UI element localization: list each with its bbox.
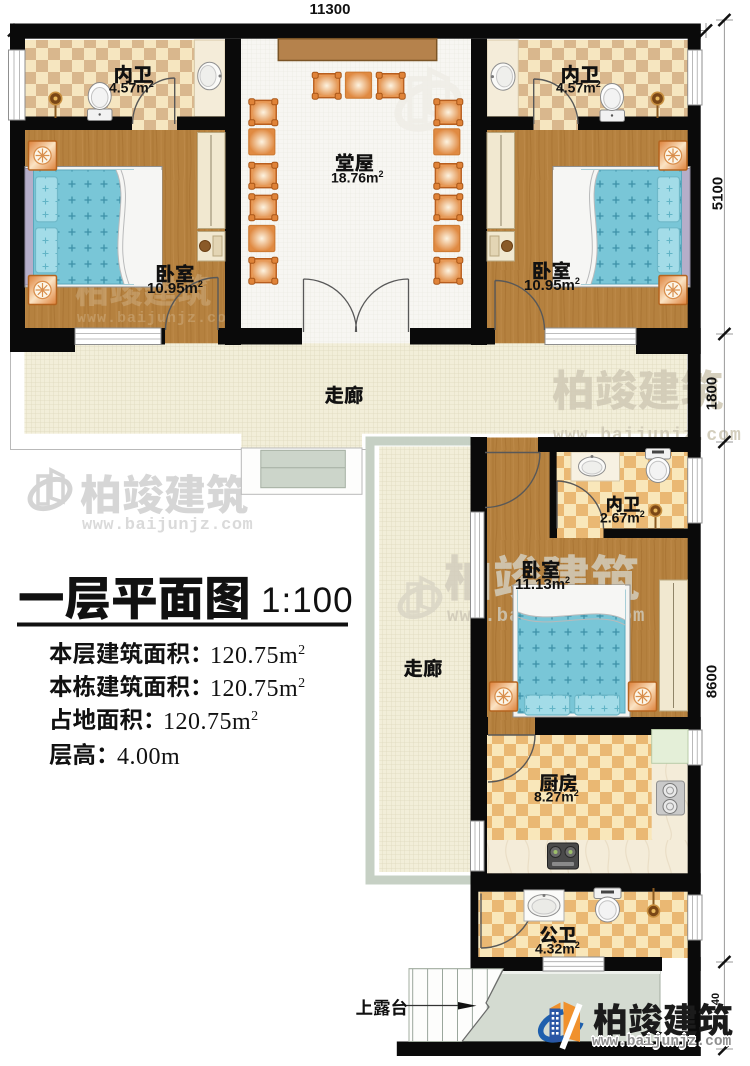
svg-text:www.baijunjz.com: www.baijunjz.com xyxy=(77,310,237,327)
svg-text:www.baijunjz.com: www.baijunjz.com xyxy=(82,516,253,535)
